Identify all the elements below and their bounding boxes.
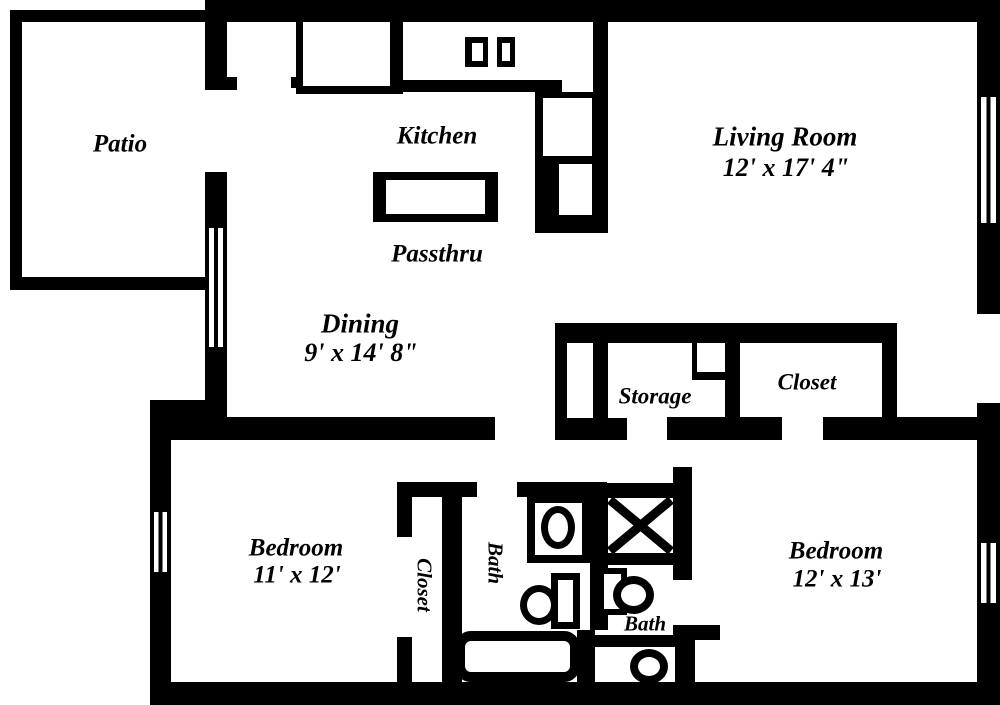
patio-wall-left xyxy=(10,10,22,290)
bedroom-left-dimensions: 11' x 12' xyxy=(253,563,341,588)
passthru-label: Passthru xyxy=(391,242,483,267)
toilet-icon xyxy=(613,576,654,614)
bedroom-right-label: Bedroom xyxy=(789,539,883,564)
wall-exterior-right xyxy=(977,22,1000,97)
wall-exterior-top xyxy=(205,0,1000,22)
bedroom-right-dimensions: 12' x 13' xyxy=(793,567,882,592)
wall-exterior-bottom xyxy=(150,682,1000,705)
storage-label: Storage xyxy=(619,385,692,408)
patio-wall-top xyxy=(10,10,205,22)
kitchen-label: Kitchen xyxy=(397,124,478,149)
wall-storage-closet xyxy=(725,343,740,417)
shower-icon xyxy=(590,483,675,498)
shower-icon xyxy=(608,498,673,553)
bathtub-icon xyxy=(455,631,580,682)
patio-wall-bottom xyxy=(10,277,205,290)
bedroom-left-label: Bedroom xyxy=(249,536,343,561)
wall-closet-right xyxy=(882,343,897,417)
door-jamb xyxy=(291,77,296,88)
window-living-room-icon xyxy=(977,97,1000,223)
wall-bedroom-left-east xyxy=(397,637,412,682)
window-bedroom-right-icon xyxy=(977,543,1000,603)
bath-main-label: Bath xyxy=(485,542,506,584)
wall-center xyxy=(667,417,782,440)
wall-storage-left xyxy=(555,343,567,440)
wall-exterior-right xyxy=(977,603,1000,682)
bath-second-label: Bath xyxy=(624,614,666,635)
living-room-label: Living Room xyxy=(713,124,858,151)
hall-closet-label: Closet xyxy=(778,371,837,394)
wall-exterior-right xyxy=(977,223,1000,314)
wall-kitchen-living xyxy=(593,22,608,233)
wall-shower-bedroom xyxy=(673,467,692,580)
toilet-icon xyxy=(520,585,558,625)
living-room-dimensions: 12' x 17' 4" xyxy=(723,155,849,181)
wall-storage xyxy=(593,343,608,418)
patio-label: Patio xyxy=(93,132,147,157)
dining-dimensions: 9' x 14' 8" xyxy=(304,340,417,366)
wall-exterior-left xyxy=(150,440,171,512)
sink-icon xyxy=(630,649,668,684)
shower-icon xyxy=(590,553,675,565)
bedroom-left-closet-label: Closet xyxy=(414,558,435,612)
wall-bath2 xyxy=(673,625,720,640)
sink-icon xyxy=(541,506,575,549)
wall-exterior-left xyxy=(150,572,171,682)
window-dining-icon xyxy=(205,228,227,347)
wall-dining-west xyxy=(205,172,227,228)
kitchen-counter-edge xyxy=(402,80,562,92)
wall-bedroom-left-east xyxy=(397,482,412,537)
door-jamb xyxy=(227,77,237,90)
utility-box-line xyxy=(692,372,728,380)
wall-bath2-vanity xyxy=(593,635,675,647)
wall-dining-west xyxy=(205,347,227,417)
linen-niche xyxy=(567,345,593,418)
wall-center xyxy=(171,417,495,440)
floor-plan: Patio Kitchen Living Room 12' x 17' 4" P… xyxy=(0,0,1000,705)
wall-center xyxy=(823,417,1000,440)
wall-storage-top xyxy=(555,323,897,343)
wall-patio-kitchen xyxy=(205,0,227,90)
window-bedroom-left-icon xyxy=(150,512,171,572)
dining-label: Dining xyxy=(321,311,399,338)
wall-bath2 xyxy=(675,640,695,682)
